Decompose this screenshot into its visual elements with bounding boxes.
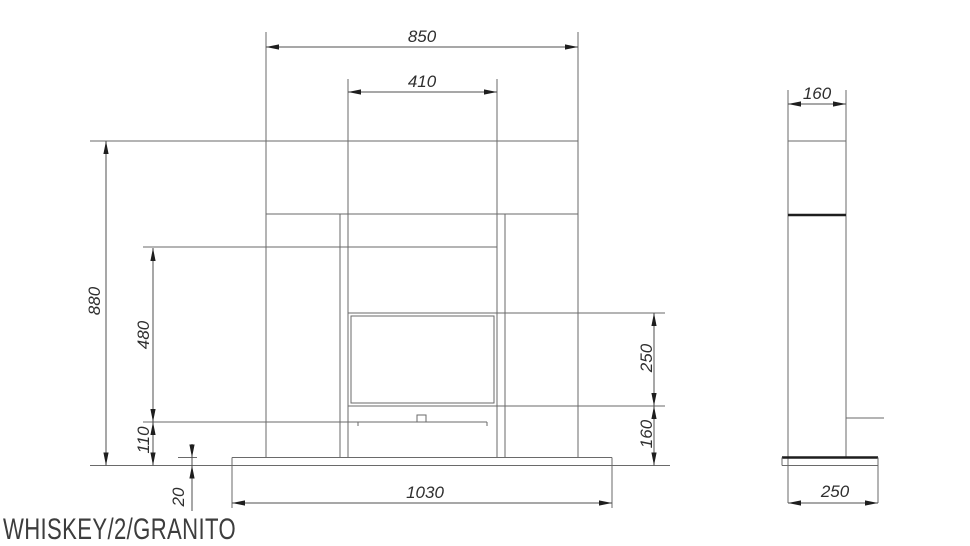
- dim-label: 410: [408, 72, 437, 91]
- dim-label: 850: [408, 27, 437, 46]
- dim-label: 1030: [406, 483, 444, 502]
- technical-drawing: 850 410 880 480 110: [0, 0, 970, 546]
- dim-label: 160: [637, 419, 656, 448]
- dim-label: 250: [820, 482, 850, 501]
- dim-label: 20: [169, 487, 188, 507]
- dim-label: 110: [134, 426, 153, 454]
- model-title: WHISKEY/2/GRANITO: [3, 513, 236, 546]
- drawing-sheet: 850 410 880 480 110: [0, 0, 970, 546]
- dim-label: 480: [134, 320, 153, 349]
- dim-label: 160: [803, 84, 832, 103]
- dim-label: 250: [637, 343, 656, 373]
- dim-label: 880: [85, 286, 104, 315]
- sheet-background: [0, 0, 970, 546]
